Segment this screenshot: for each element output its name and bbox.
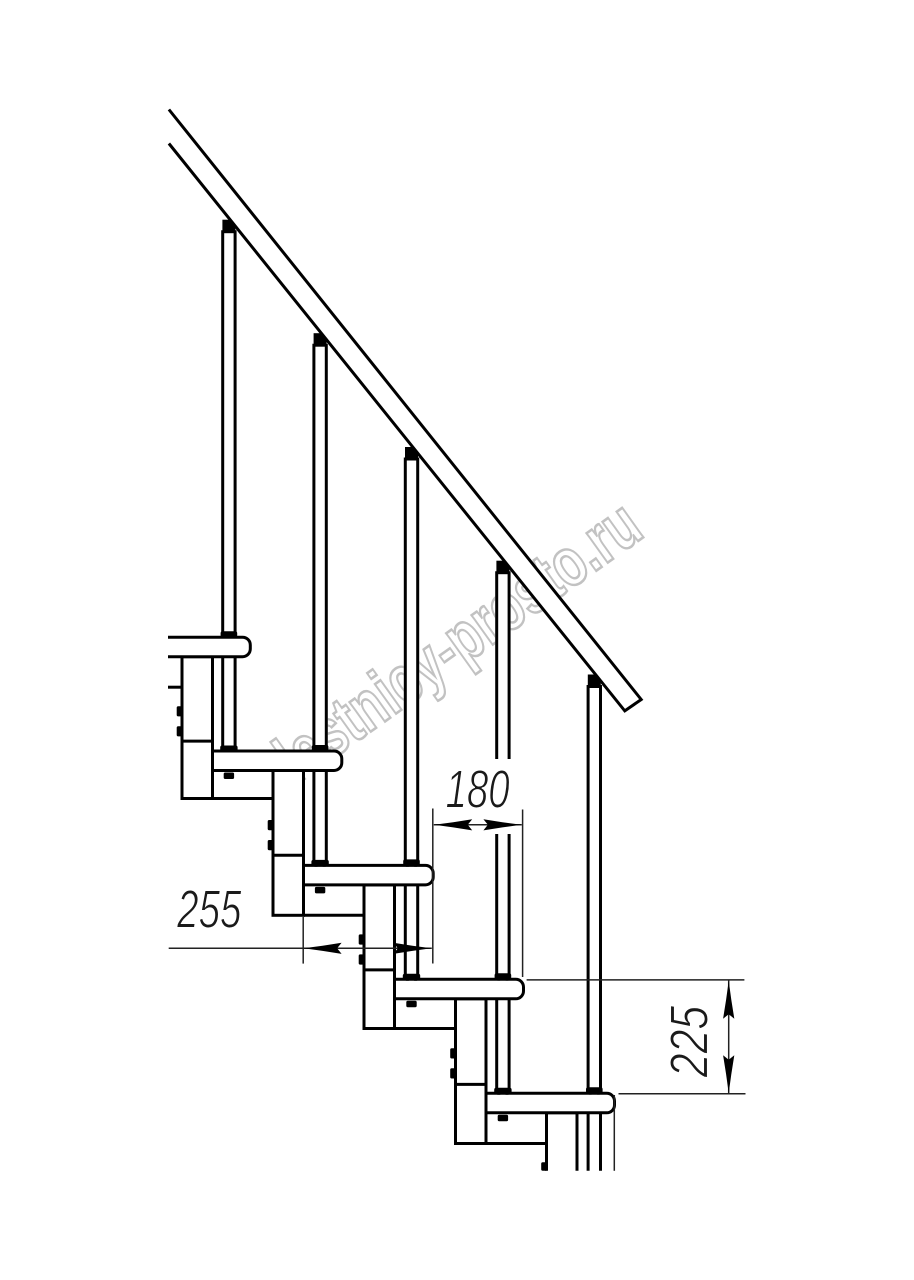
svg-text:225: 225 (660, 1005, 720, 1078)
svg-text:255: 255 (176, 879, 242, 939)
svg-text:180: 180 (445, 759, 509, 819)
